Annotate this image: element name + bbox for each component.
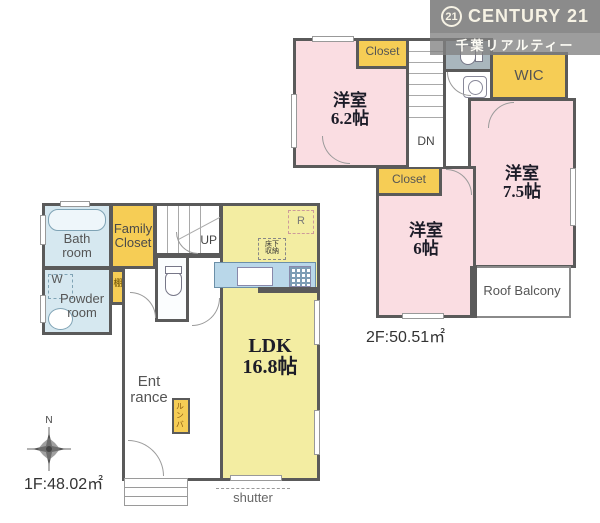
bathtub-icon: [48, 209, 106, 231]
toilet-tank: [165, 266, 182, 274]
window: [570, 168, 576, 226]
room-bedroom-6-2-label: 洋室 6.2帖: [300, 92, 400, 128]
room-bedroom-7-5-label: 洋室 7.5帖: [472, 165, 572, 201]
family-closet-label: Family Closet: [106, 222, 160, 249]
room-name: rance: [130, 389, 168, 406]
room-name: LDK: [248, 335, 291, 357]
room-size: 6帖: [413, 239, 439, 258]
window: [60, 201, 90, 207]
step: [124, 496, 188, 506]
room-size: 16.8帖: [243, 356, 298, 378]
room-name: room: [62, 245, 92, 260]
toilet-icon: [165, 272, 182, 296]
company-name: 千葉リアルティー: [455, 35, 574, 54]
underfloor-label: 床下 収納: [258, 241, 286, 256]
room-size: 7.5帖: [503, 182, 541, 201]
shutter-line: [216, 488, 290, 489]
roomba-label: ルンバ: [175, 402, 183, 429]
roof-balcony-label: Roof Balcony: [475, 284, 569, 298]
window: [402, 313, 444, 319]
company-banner: 千葉リアルティー: [430, 33, 600, 55]
century21-circle-logo: 21: [441, 6, 462, 27]
room-bedroom-6-label: 洋室 6帖: [378, 222, 474, 258]
floor-plan-page: 洋室 6.2帖 Closet DN WIC 洋室 7.5帖: [0, 0, 600, 523]
entrance-label: Ent rance: [124, 374, 174, 406]
shelf-label: 棚: [112, 278, 121, 288]
stairs-2f: DN: [406, 38, 446, 152]
room-name: 洋室: [333, 91, 367, 110]
window: [291, 94, 297, 148]
compass-north-label: N: [26, 416, 72, 427]
window: [230, 475, 282, 481]
powder-room-label: Powder room: [52, 292, 112, 319]
storage-name: 床下: [265, 241, 279, 248]
kitchen-sink: [237, 267, 273, 286]
stairs-dn-label: DN: [409, 135, 443, 148]
century21-logo-text: CENTURY 21: [468, 6, 589, 27]
compass: N: [26, 416, 72, 474]
closet-mid-label: Closet: [376, 173, 442, 186]
floor2-area-label: 2F:50.51㎡: [366, 330, 496, 347]
room-name: Ent: [138, 373, 161, 390]
brand-banner: 21 CENTURY 21: [430, 0, 600, 33]
stairs-up-label: UP: [200, 234, 217, 247]
stove-icon: [289, 266, 311, 287]
room-name: 洋室: [409, 221, 443, 240]
room-name: Closet: [115, 235, 152, 250]
window: [312, 36, 354, 42]
window: [40, 215, 46, 245]
powder-w-label: W: [46, 273, 68, 286]
room-name: room: [67, 305, 97, 320]
counter-wall: [258, 287, 320, 293]
fridge-label: R: [288, 216, 314, 228]
window: [314, 300, 320, 345]
bathroom-label: Bath room: [44, 232, 110, 259]
window: [314, 410, 320, 455]
floor1-area-label: 1F:48.02㎡: [24, 477, 154, 494]
room-size: 6.2帖: [331, 109, 369, 128]
wic-label: WIC: [490, 68, 568, 84]
toilet-room-1f: [155, 255, 189, 322]
hall-2f-landing: [409, 149, 443, 167]
compass-rose-icon: [26, 426, 72, 472]
shutter-label: shutter: [216, 491, 290, 505]
kitchen-counter: [214, 262, 316, 288]
ldk-label: LDK 16.8帖: [222, 336, 318, 378]
storage-name: 収納: [265, 248, 279, 255]
room-name: 洋室: [505, 164, 539, 183]
closet-top-label: Closet: [356, 45, 409, 58]
window: [40, 295, 46, 323]
